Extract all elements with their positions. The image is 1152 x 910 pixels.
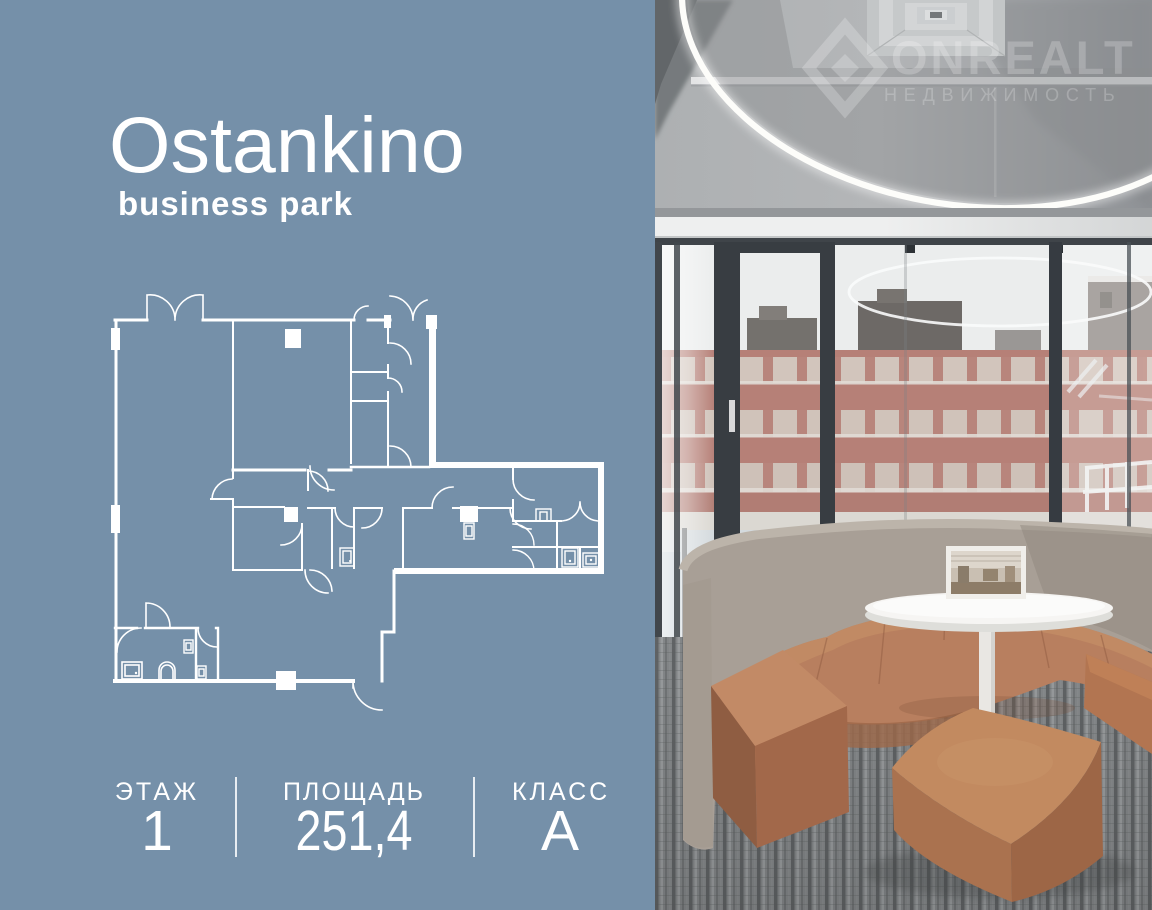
svg-text:ONREALT: ONREALT (891, 31, 1136, 84)
svg-text:НЕДВИЖИМОСТЬ: НЕДВИЖИМОСТЬ (884, 85, 1122, 105)
